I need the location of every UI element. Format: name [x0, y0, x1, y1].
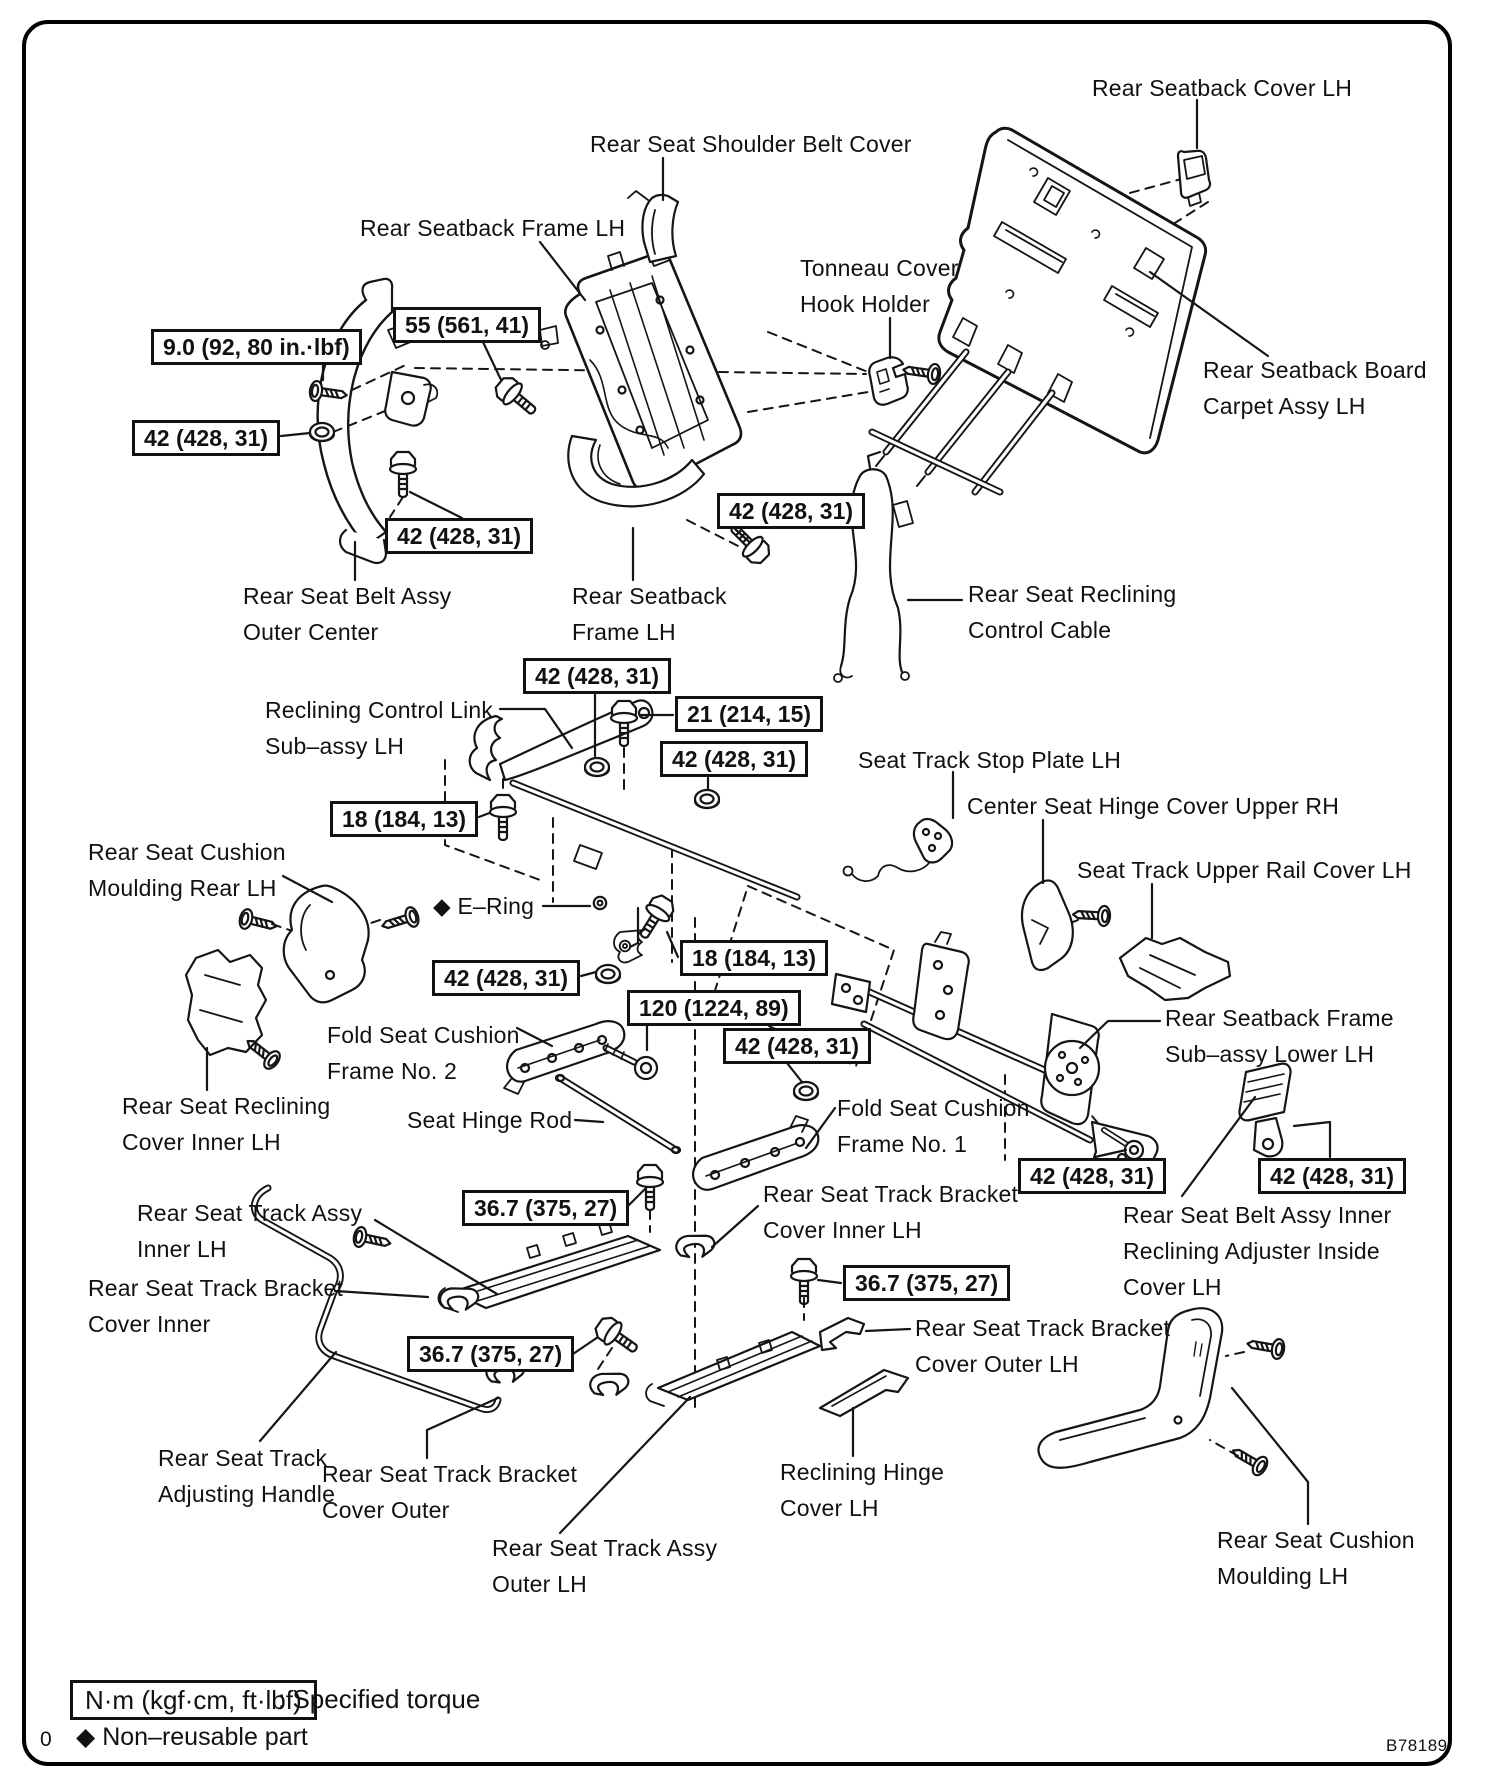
torque-spec-box-t-42-e: 42 (428, 31)	[660, 741, 808, 777]
torque-spec-box-t-36-a: 36.7 (375, 27)	[462, 1190, 629, 1226]
part-label-line: Tonneau Cover	[800, 250, 959, 286]
figure-code: B78189	[1386, 1736, 1448, 1756]
page-margin-char: 0	[40, 1728, 52, 1752]
part-label-seat-track-stop-plate-lh: Seat Track Stop Plate LH	[858, 742, 1121, 778]
torque-spec-box-t-55: 55 (561, 41)	[393, 307, 541, 343]
diamond-icon: ◆	[76, 1723, 95, 1751]
legend-non-reusable: ◆ Non–reusable part	[76, 1722, 308, 1752]
torque-spec-box-t-42-b: 42 (428, 31)	[385, 518, 533, 554]
part-label-rear-seat-track-assy-outer-lh: Rear Seat Track AssyOuter LH	[492, 1530, 717, 1602]
part-label-rear-seat-belt-assy-outer-center: Rear Seat Belt AssyOuter Center	[243, 578, 451, 650]
torque-spec-box-t-120: 120 (1224, 89)	[627, 990, 801, 1026]
part-label-center-seat-hinge-cover-upper-rh: Center Seat Hinge Cover Upper RH	[967, 788, 1339, 824]
seat-track-stop-plate-lh-drawing	[844, 819, 953, 881]
part-label-tonneau-cover-hook-holder: Tonneau CoverHook Holder	[800, 250, 959, 322]
part-label-rear-seat-track-bracket-cover-outer-lh: Rear Seat Track BracketCover Outer LH	[915, 1310, 1170, 1382]
part-label-rear-seatback-frame-lh-mid: Rear SeatbackFrame LH	[572, 578, 727, 650]
part-label-rear-seat-track-bracket-cover-inner-lh: Rear Seat Track BracketCover Inner LH	[763, 1176, 1018, 1248]
torque-spec-box-t-42-a: 42 (428, 31)	[132, 420, 280, 456]
rear-seat-reclining-control-cable-drawing	[834, 452, 913, 682]
part-label-line: Rear Seat Cushion	[1217, 1522, 1415, 1558]
part-label-line: Seat Track Stop Plate LH	[858, 742, 1121, 778]
part-label-rear-seat-reclining-cover-inner-lh: Rear Seat RecliningCover In​ner LH	[122, 1088, 330, 1160]
center-seat-hinge-cover-upper-rh-drawing	[1022, 880, 1111, 970]
part-label-fold-seat-cushion-frame-no-2: Fold Seat CushionFrame No. 2	[327, 1017, 520, 1089]
legend-torque-note: : Specified torque	[278, 1684, 480, 1715]
part-label-line: Rear Seat Cushion	[88, 834, 286, 870]
part-label-line: Rear Seat Track Bracket	[88, 1270, 343, 1306]
part-label-line: ◆ E–Ring	[433, 888, 534, 924]
part-label-reclining-control-link-sub-assy: Reclining Control LinkSub–assy LH	[265, 692, 493, 764]
part-label-line: Rear Seatback Cover LH	[1092, 70, 1352, 106]
part-label-line: Carpet Assy LH	[1203, 388, 1427, 424]
part-label-line: Rear Seat Belt Assy Inner	[1123, 1197, 1391, 1233]
torque-spec-box-t-42-i: 42 (428, 31)	[1258, 1158, 1406, 1194]
part-label-line: Moulding LH	[1217, 1558, 1415, 1594]
part-label-e-ring: ◆ E–Ring	[433, 888, 534, 924]
part-label-fold-seat-cushion-frame-no-1: Fold Seat CushionFrame No. 1	[837, 1090, 1030, 1162]
part-label-line: Rear Seat Track Bracket	[763, 1176, 1018, 1212]
part-label-rear-seat-reclining-control-cable: Rear Seat RecliningControl Cable	[968, 576, 1176, 648]
part-label-line: Cover Outer LH	[915, 1346, 1170, 1382]
part-label-line: Seat Track Upper Rail Cover LH	[1077, 852, 1412, 888]
rear-seatback-frame-lh-drawing	[540, 232, 741, 506]
reclining-hinge-cover-lh-drawing	[820, 1370, 908, 1416]
torque-spec-box-t-36-c: 36.7 (375, 27)	[843, 1265, 1010, 1301]
part-label-rear-seat-cushion-moulding-rear-lh: Rear Seat CushionMoulding Rear LH	[88, 834, 286, 906]
torque-spec-box-t-42-d: 42 (428, 31)	[523, 658, 671, 694]
part-label-rear-seat-track-adjusting-handle: Rear Seat TrackAdjusting Handle	[158, 1440, 335, 1512]
torque-spec-box-t-42-h: 42 (428, 31)	[1018, 1158, 1166, 1194]
part-label-line: Center Seat Hinge Cover Upper RH	[967, 788, 1339, 824]
part-label-line: Cover In​ner LH	[122, 1124, 330, 1160]
part-label-line: Outer LH	[492, 1566, 717, 1602]
part-label-rear-seatback-cover-lh: Rear Seatback Cover LH	[1092, 70, 1352, 106]
part-label-line: Rear Seat Shoulder Belt Cover	[590, 126, 912, 162]
part-label-rear-seat-track-bracket-cover-inner: Rear Seat Track BracketCover Inner	[88, 1270, 343, 1342]
part-label-line: Outer Center	[243, 614, 451, 650]
part-label-line: Rear Seatback Frame LH	[360, 210, 625, 246]
part-label-rear-seatback-frame-lh-top: Rear Seatback Frame LH	[360, 210, 625, 246]
part-label-rear-seat-track-assy-inner-lh: Rear Seat Track AssyInner LH	[137, 1195, 362, 1267]
torque-spec-box-t-18-b: 18 (184, 13)	[680, 940, 828, 976]
torque-spec-box-t-42-f: 42 (428, 31)	[432, 960, 580, 996]
part-label-line: Frame No. 1	[837, 1126, 1030, 1162]
part-label-line: Hook Holder	[800, 286, 959, 322]
part-label-line: Frame LH	[572, 614, 727, 650]
part-label-line: Rear Seat Reclining	[122, 1088, 330, 1124]
torque-spec-box-t-36-b: 36.7 (375, 27)	[407, 1336, 574, 1372]
rear-seat-track-assy-inner-lh-drawing	[352, 1222, 660, 1312]
rear-seat-track-bracket-covers-drawing	[439, 1232, 864, 1399]
part-label-rear-seatback-frame-sub-assy-lower: Rear Seatback FrameSub–assy Lower LH	[1165, 1000, 1394, 1072]
part-label-line: Rear Seat Track Bracket	[322, 1456, 577, 1492]
part-label-line: Rear Seat Belt Assy	[243, 578, 451, 614]
seat-track-upper-rail-cover-lh-drawing	[1120, 938, 1230, 1000]
part-label-line: Cover LH	[1123, 1269, 1391, 1305]
part-label-line: Fold Seat Cushion	[837, 1090, 1030, 1126]
legend-torque-box-label: N·m (kgf·cm, ft·lbf)	[85, 1685, 302, 1715]
part-label-seat-hinge-rod: Seat Hinge Rod	[407, 1102, 572, 1138]
rear-seat-track-assy-outer-lh-drawing	[646, 1332, 820, 1406]
part-label-line: Seat Hinge Rod	[407, 1102, 572, 1138]
part-label-line: Adjusting Handle	[158, 1476, 335, 1512]
part-label-rear-seat-belt-assy-inner: Rear Seat Belt Assy InnerReclining Adjus…	[1123, 1197, 1391, 1305]
part-label-seat-track-upper-rail-cover-lh: Seat Track Upper Rail Cover LH	[1077, 852, 1412, 888]
part-label-rear-seat-cushion-moulding-lh: Rear Seat CushionMoulding LH	[1217, 1522, 1415, 1594]
torque-spec-box-t-18-a: 18 (184, 13)	[330, 801, 478, 837]
part-label-line: Reclining Control Link	[265, 692, 493, 728]
part-label-line: Cover Inner	[88, 1306, 343, 1342]
part-label-line: Rear Seat Track	[158, 1440, 335, 1476]
part-label-rear-seat-shoulder-belt-cover: Rear Seat Shoulder Belt Cover	[590, 126, 912, 162]
part-label-reclining-hinge-cover-lh: Reclining HingeCover LH	[780, 1454, 944, 1526]
legend-non-reusable-label: Non–reusable part	[102, 1723, 308, 1751]
part-label-line: Cover LH	[780, 1490, 944, 1526]
part-label-line: Sub–assy Lower LH	[1165, 1036, 1394, 1072]
part-label-line: Sub–assy LH	[265, 728, 493, 764]
part-label-line: Reclining Hinge	[780, 1454, 944, 1490]
part-label-line: Reclining Adjuster Inside	[1123, 1233, 1391, 1269]
manual-page: Rear Seatback Cover LHRear Seat Shoulder…	[0, 0, 1504, 1786]
part-label-line: Rear Seatback Board	[1203, 352, 1427, 388]
torque-spec-box-t-42-c: 42 (428, 31)	[717, 493, 865, 529]
part-label-line: Control Cable	[968, 612, 1176, 648]
torque-spec-box-t-9-0: 9.0 (92, 80 in.·lbf)	[151, 329, 362, 365]
part-label-rear-seat-track-bracket-cover-outer: Rear Seat Track BracketCover Outer	[322, 1456, 577, 1528]
part-label-line: Fold Seat Cushion	[327, 1017, 520, 1053]
part-label-rear-seatback-board-carpet-assy: Rear Seatback BoardCarpet Assy LH	[1203, 352, 1427, 424]
torque-spec-box-t-42-g: 42 (428, 31)	[723, 1028, 871, 1064]
rear-seat-belt-assy-inner-drawing	[1239, 1064, 1290, 1157]
part-label-line: Cover Inner LH	[763, 1212, 1018, 1248]
rear-seat-shoulder-belt-cover-drawing	[628, 191, 678, 262]
part-label-line: Inner LH	[137, 1231, 362, 1267]
part-label-line: Cover Outer	[322, 1492, 577, 1528]
part-label-line: Rear Seatback	[572, 578, 727, 614]
part-label-line: Rear Seatback Frame	[1165, 1000, 1394, 1036]
part-label-line: Rear Seat Track Assy	[492, 1530, 717, 1566]
rear-seat-reclining-cover-inner-lh-drawing	[186, 950, 283, 1072]
torque-spec-box-t-21: 21 (214, 15)	[675, 696, 823, 732]
part-label-line: Rear Seat Track Assy	[137, 1195, 362, 1231]
seat-hinge-rod-drawing	[556, 1075, 680, 1153]
part-label-line: Frame No. 2	[327, 1053, 520, 1089]
rear-seatback-cover-lh-drawing	[1178, 151, 1210, 206]
part-label-line: Rear Seat Track Bracket	[915, 1310, 1170, 1346]
part-label-line: Rear Seat Reclining	[968, 576, 1176, 612]
part-label-line: Moulding Rear LH	[88, 870, 286, 906]
